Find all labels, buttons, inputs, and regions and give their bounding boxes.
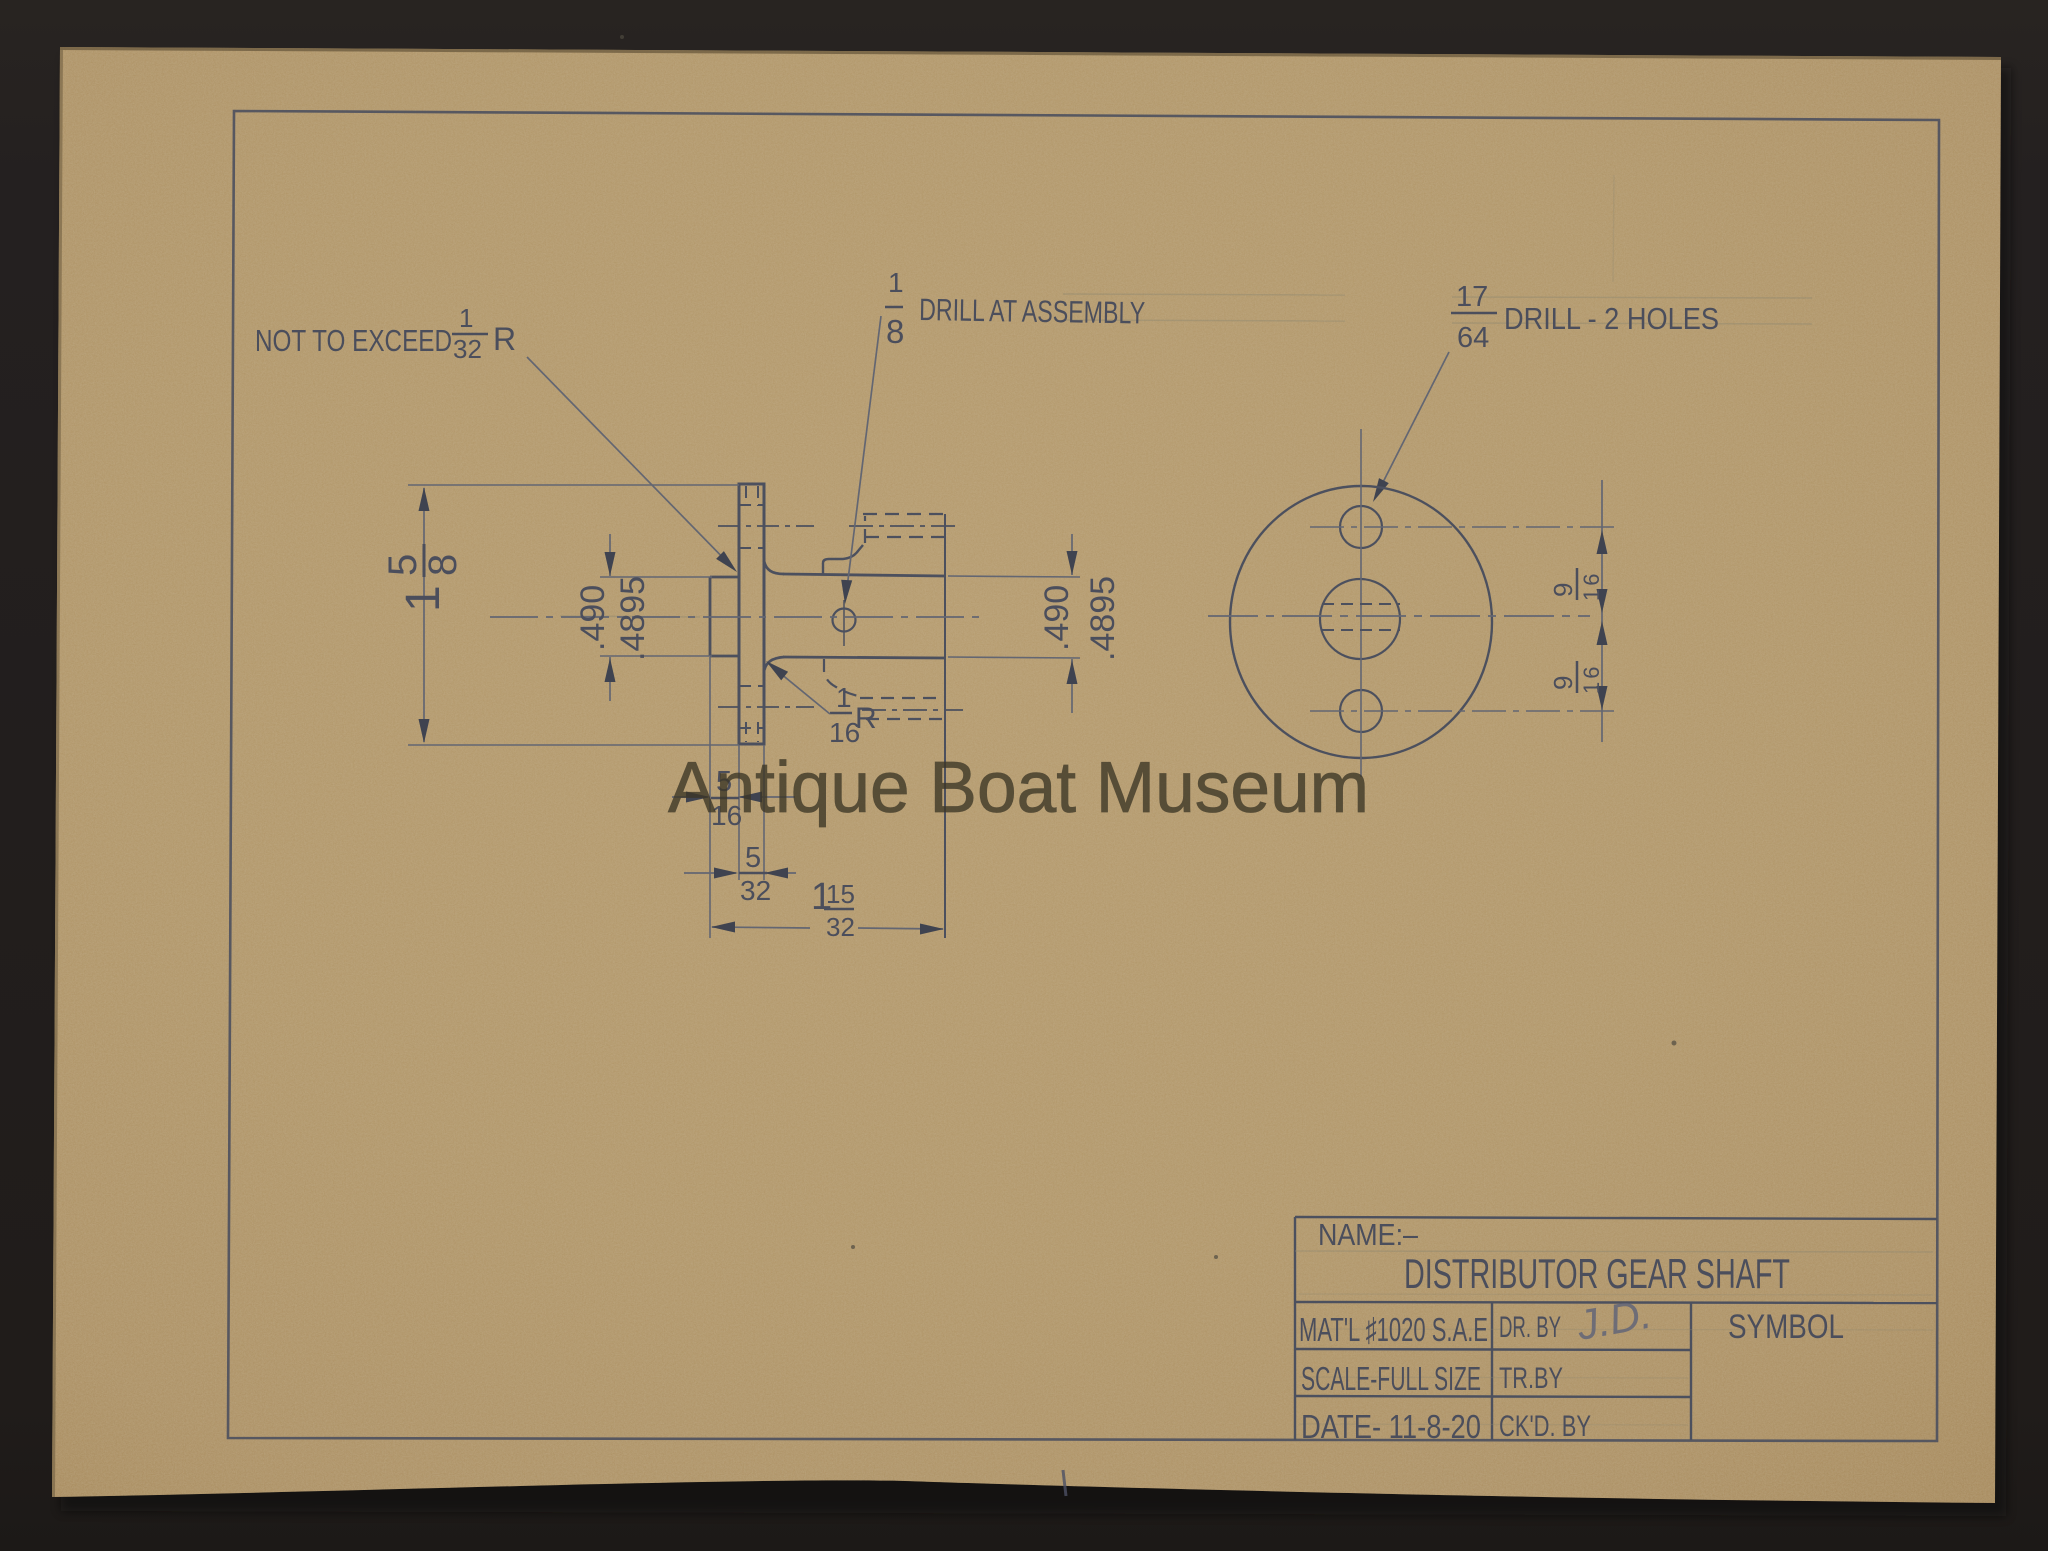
svg-text:1: 1 xyxy=(888,267,904,298)
svg-text:17: 17 xyxy=(1456,281,1488,313)
svg-text:NOT TO EXCEED: NOT TO EXCEED xyxy=(255,323,452,358)
svg-text:R: R xyxy=(493,321,516,357)
svg-text:32: 32 xyxy=(826,912,855,942)
svg-text:.490: .490 xyxy=(574,585,612,651)
svg-text:DR. BY: DR. BY xyxy=(1499,1311,1561,1344)
svg-text:1: 1 xyxy=(397,585,450,612)
svg-text:DATE- 11-8-20: DATE- 11-8-20 xyxy=(1301,1408,1481,1445)
svg-text:Antique Boat Museum: Antique Boat Museum xyxy=(668,748,1369,828)
svg-text:MAT'L ♯1020 S.A.E: MAT'L ♯1020 S.A.E xyxy=(1299,1311,1488,1348)
svg-text:CK'D. BY: CK'D. BY xyxy=(1499,1410,1591,1443)
svg-text:15: 15 xyxy=(826,879,855,909)
svg-text:DISTRIBUTOR GEAR SHAFT: DISTRIBUTOR GEAR SHAFT xyxy=(1404,1250,1790,1297)
svg-text:32: 32 xyxy=(740,875,771,906)
svg-text:SCALE-FULL SIZE: SCALE-FULL SIZE xyxy=(1301,1360,1481,1397)
svg-text:SYMBOL: SYMBOL xyxy=(1728,1308,1844,1346)
svg-text:8: 8 xyxy=(886,313,904,350)
svg-text:TR.BY: TR.BY xyxy=(1499,1362,1563,1395)
svg-text:DRILL - 2 HOLES: DRILL - 2 HOLES xyxy=(1504,301,1719,336)
svg-text:9: 9 xyxy=(1548,676,1578,690)
svg-text:1: 1 xyxy=(459,303,473,333)
svg-text:5: 5 xyxy=(745,842,761,874)
svg-text:16: 16 xyxy=(1579,571,1604,601)
svg-text:8: 8 xyxy=(421,554,465,576)
svg-text:R: R xyxy=(855,702,877,735)
svg-text:64: 64 xyxy=(1457,322,1489,354)
svg-text:DRILL AT ASSEMBLY: DRILL AT ASSEMBLY xyxy=(919,292,1146,331)
svg-text:.490: .490 xyxy=(1038,585,1076,651)
svg-text:NAME:–: NAME:– xyxy=(1318,1217,1419,1252)
svg-text:9: 9 xyxy=(1548,583,1578,597)
svg-text:1: 1 xyxy=(836,682,852,713)
svg-text:.4895: .4895 xyxy=(1084,576,1122,661)
svg-text:5: 5 xyxy=(381,554,425,576)
svg-text:16: 16 xyxy=(1579,664,1604,694)
svg-text:.4895: .4895 xyxy=(614,576,652,661)
svg-text:32: 32 xyxy=(453,334,482,364)
